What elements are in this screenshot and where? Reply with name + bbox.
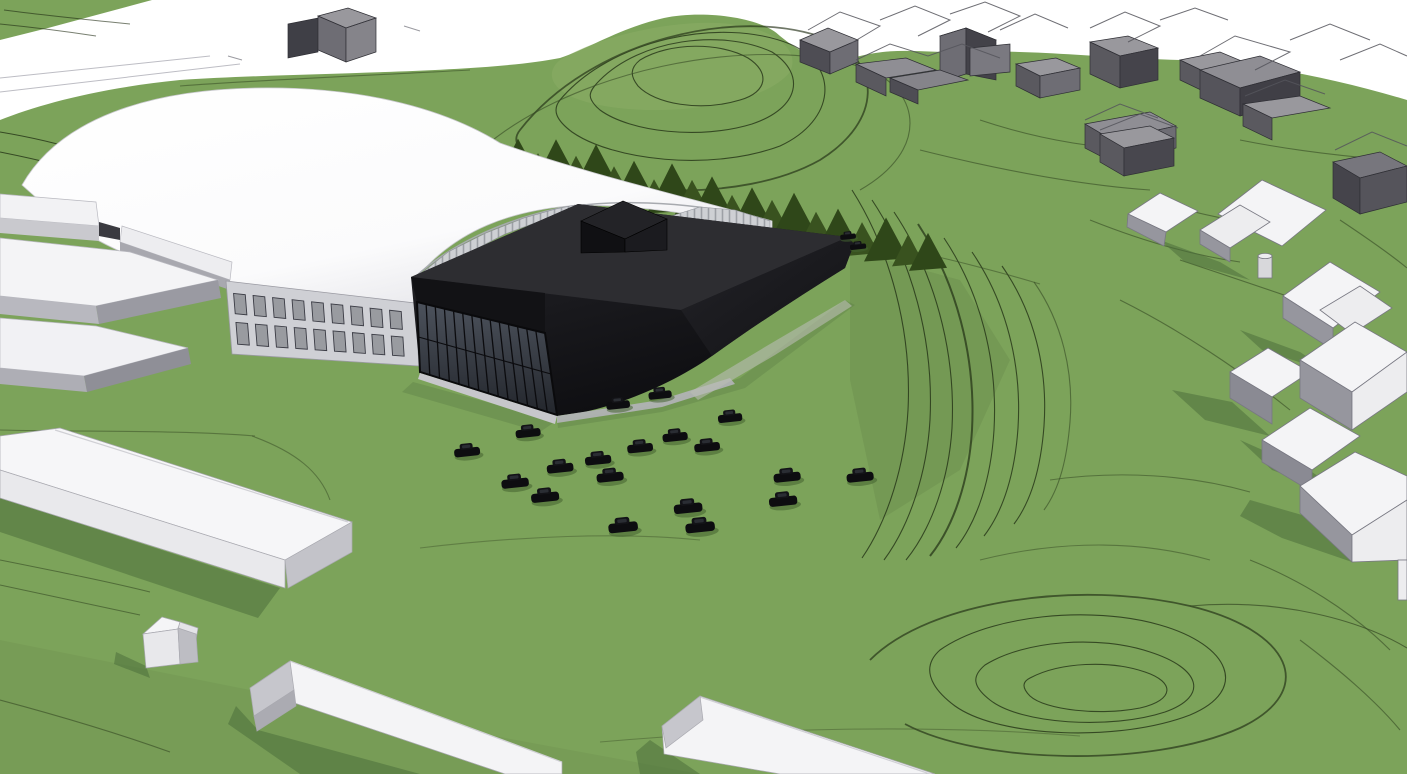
window — [273, 298, 286, 319]
window — [292, 300, 305, 321]
window — [351, 306, 364, 326]
window — [234, 293, 247, 314]
silo — [1258, 256, 1272, 278]
scene-svg — [0, 0, 1407, 774]
window — [333, 331, 346, 352]
window — [312, 302, 325, 322]
context-building-dark-house — [1333, 152, 1407, 214]
window — [255, 324, 268, 346]
window — [236, 322, 249, 345]
window — [370, 308, 383, 327]
context-building — [1100, 126, 1174, 176]
window — [372, 334, 385, 354]
window — [352, 333, 365, 354]
window — [314, 329, 327, 350]
building-edge — [1398, 560, 1407, 600]
window — [275, 326, 288, 348]
site-visualization-canvas: Aerial 3D architectural massing visualiz… — [0, 0, 1407, 774]
window — [253, 296, 266, 317]
window — [391, 336, 404, 356]
window — [390, 310, 403, 329]
window — [331, 304, 344, 324]
window — [294, 328, 307, 350]
